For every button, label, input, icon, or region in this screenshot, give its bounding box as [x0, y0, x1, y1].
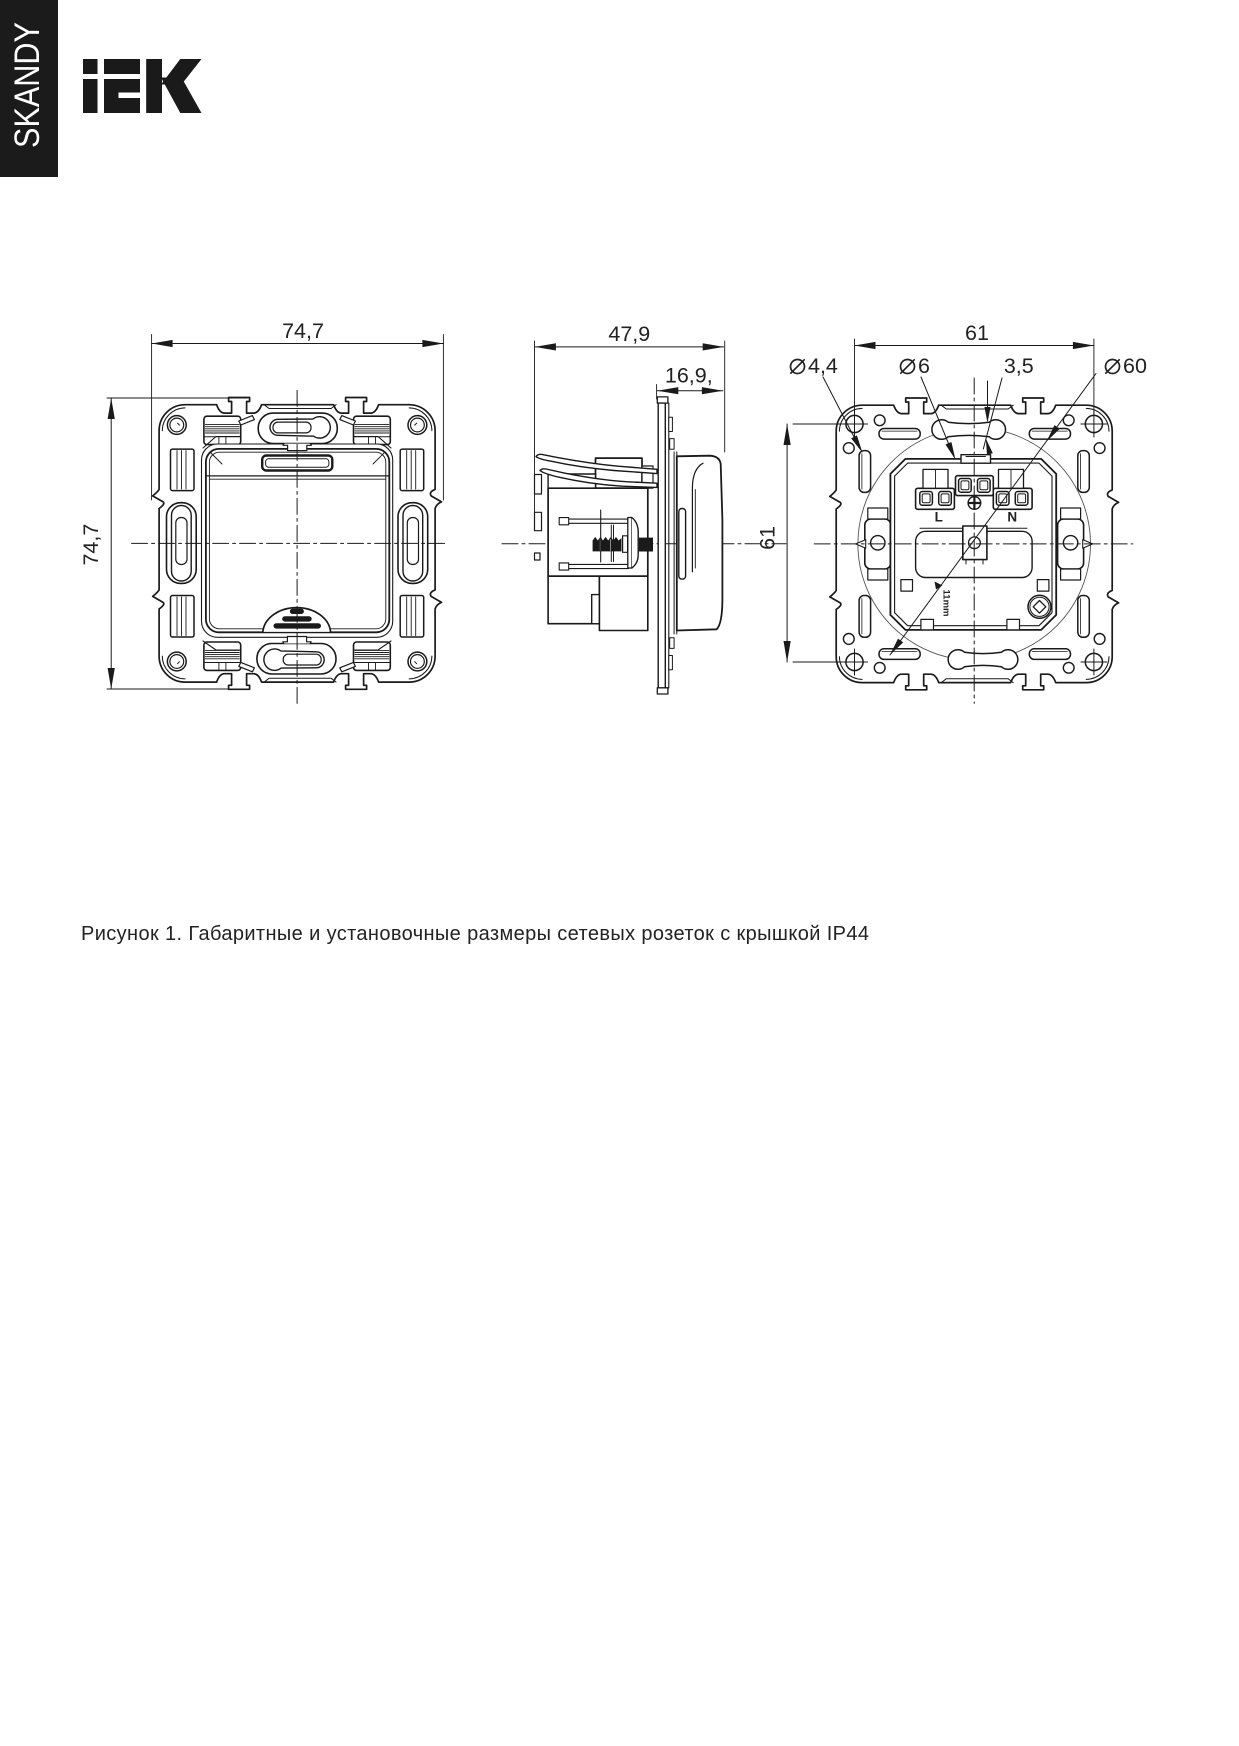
svg-text:47,9: 47,9 [608, 322, 650, 346]
svg-text:61: 61 [756, 526, 780, 550]
svg-text:74,7: 74,7 [282, 319, 324, 343]
svg-text:L: L [935, 510, 943, 525]
svg-text:60: 60 [1123, 354, 1147, 378]
svg-text:61: 61 [965, 321, 989, 345]
svg-text:11mm: 11mm [941, 590, 952, 617]
svg-text:N: N [1007, 510, 1017, 525]
svg-text:16,9,: 16,9, [665, 364, 713, 388]
svg-text:74,7: 74,7 [79, 524, 103, 566]
svg-text:3,5: 3,5 [1004, 354, 1034, 378]
svg-text:4,4: 4,4 [808, 354, 838, 378]
svg-text:6: 6 [918, 354, 930, 378]
